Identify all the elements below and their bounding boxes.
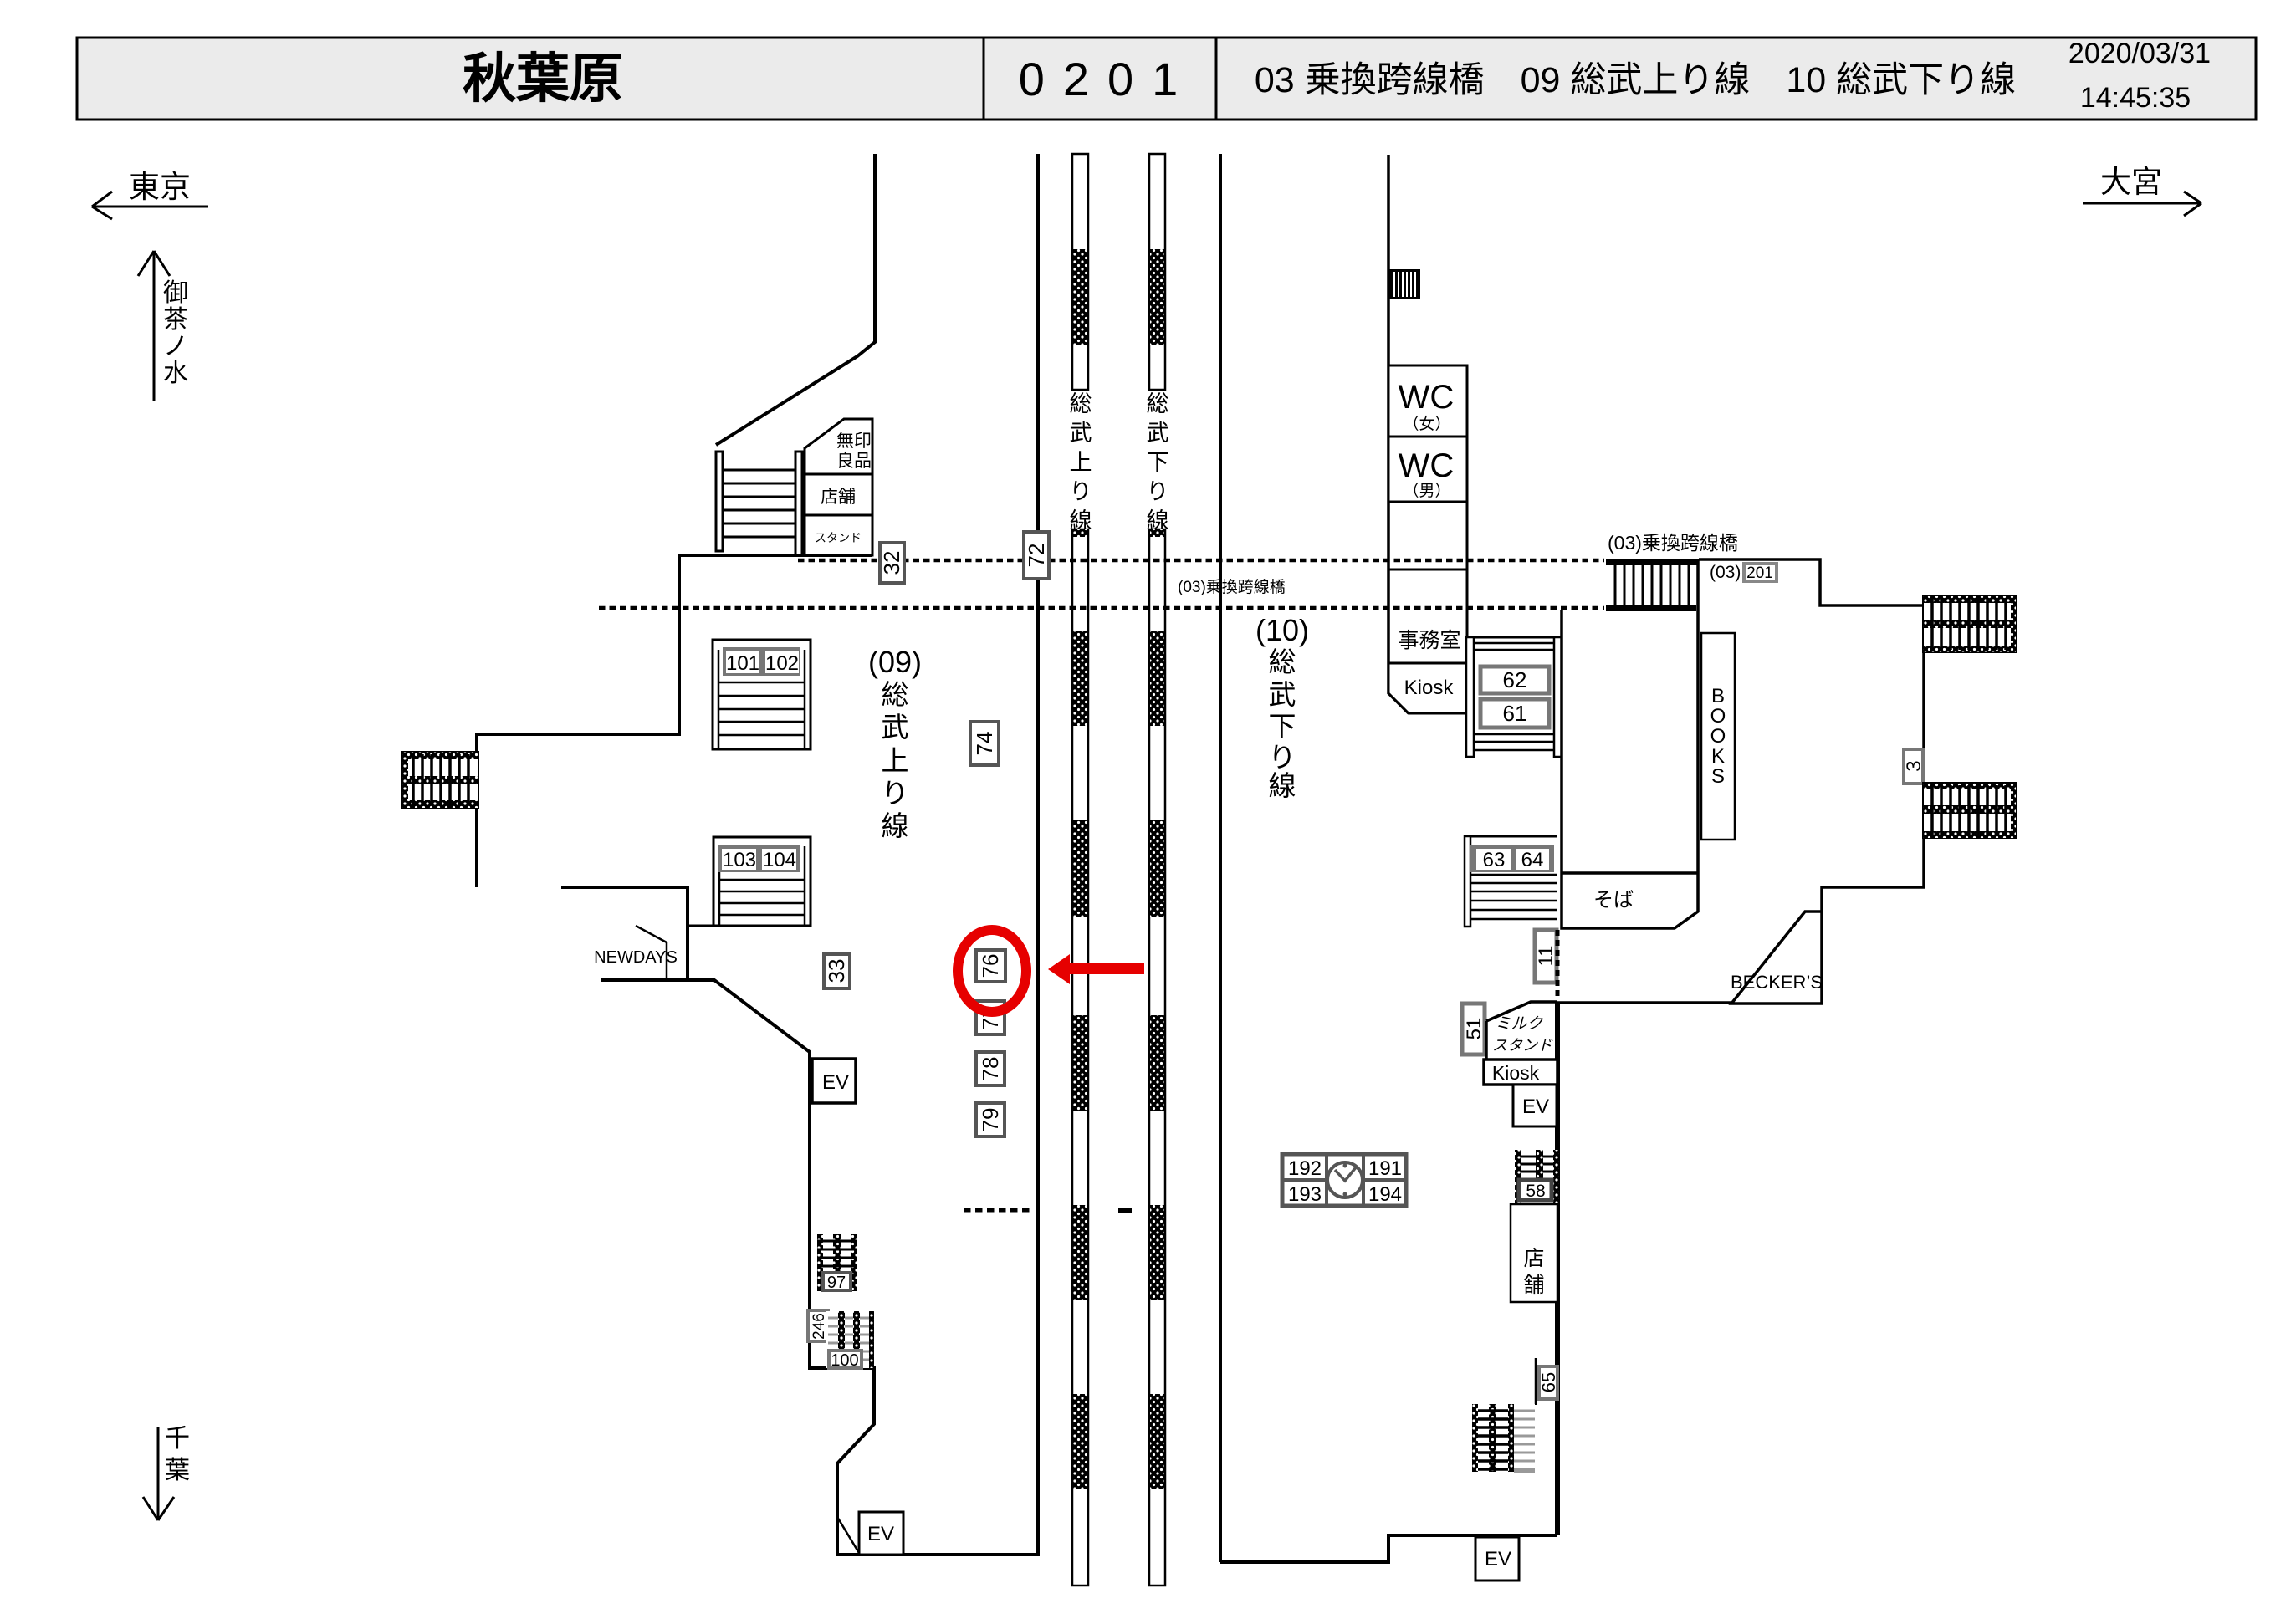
- svg-text:(10): (10): [1255, 613, 1309, 647]
- svg-text:り: り: [1147, 479, 1169, 504]
- svg-text:線: 線: [1269, 770, 1296, 801]
- svg-text:14:45:35: 14:45:35: [2080, 82, 2191, 114]
- svg-text:104: 104: [763, 849, 796, 871]
- svg-text:スタンド: スタンド: [815, 531, 862, 544]
- svg-text:O: O: [1710, 705, 1726, 728]
- svg-text:水: 水: [163, 360, 188, 387]
- svg-text:32: 32: [879, 551, 904, 575]
- svg-text:103: 103: [723, 849, 756, 871]
- svg-text:武: 武: [1070, 421, 1092, 446]
- svg-text:97: 97: [827, 1274, 846, 1292]
- svg-text:良品: 良品: [836, 452, 872, 471]
- svg-text:11: 11: [1535, 946, 1557, 967]
- svg-text:246: 246: [811, 1313, 828, 1340]
- svg-text:総: 総: [1269, 646, 1296, 677]
- svg-text:K: K: [1711, 745, 1725, 768]
- svg-text:EV: EV: [1522, 1095, 1549, 1118]
- svg-text:102: 102: [765, 652, 799, 675]
- svg-text:ノ: ノ: [163, 333, 188, 360]
- svg-text:63: 63: [1483, 849, 1506, 871]
- svg-text:191: 191: [1368, 1157, 1402, 1180]
- svg-text:58: 58: [1526, 1182, 1545, 1201]
- svg-text:（女）: （女）: [1403, 415, 1450, 433]
- svg-text:東京: 東京: [129, 170, 191, 204]
- svg-text:101: 101: [726, 652, 759, 675]
- svg-text:そば: そば: [1593, 889, 1634, 912]
- svg-text:B: B: [1711, 685, 1725, 707]
- svg-text:店: 店: [1523, 1247, 1544, 1270]
- svg-text:194: 194: [1368, 1183, 1402, 1206]
- svg-text:武: 武: [1269, 679, 1296, 710]
- svg-text:100: 100: [831, 1351, 858, 1370]
- svg-text:61: 61: [1503, 701, 1527, 726]
- svg-text:(03)乗換跨線橋: (03)乗換跨線橋: [1608, 532, 1738, 554]
- svg-text:79: 79: [978, 1108, 1003, 1132]
- svg-text:御: 御: [163, 279, 188, 307]
- svg-text:り: り: [882, 778, 909, 809]
- svg-text:(03): (03): [1710, 563, 1741, 582]
- svg-text:総: 総: [1070, 391, 1092, 416]
- svg-text:65: 65: [1538, 1372, 1559, 1392]
- svg-text:62: 62: [1503, 667, 1527, 692]
- svg-text:武: 武: [1147, 421, 1169, 446]
- svg-text:総: 総: [1147, 391, 1169, 416]
- svg-text:78: 78: [978, 1057, 1003, 1081]
- svg-text:WC: WC: [1399, 379, 1455, 416]
- svg-text:0201: 0201: [1019, 53, 1197, 105]
- svg-text:193: 193: [1288, 1183, 1322, 1206]
- svg-text:EV: EV: [1485, 1548, 1511, 1570]
- svg-text:店舗: 店舗: [821, 488, 856, 507]
- svg-text:Kiosk: Kiosk: [1492, 1062, 1540, 1084]
- svg-text:茶: 茶: [163, 306, 188, 334]
- svg-text:O: O: [1710, 725, 1726, 748]
- svg-text:下: 下: [1147, 450, 1169, 475]
- svg-text:3: 3: [1903, 760, 1925, 771]
- svg-text:2020/03/31: 2020/03/31: [2068, 38, 2211, 69]
- svg-text:NEWDAYS: NEWDAYS: [594, 948, 678, 967]
- svg-text:(03)乗換跨線橋: (03)乗換跨線橋: [1178, 578, 1286, 596]
- svg-text:スタンド: スタンド: [1492, 1037, 1553, 1054]
- svg-text:（男）: （男）: [1403, 482, 1450, 500]
- svg-text:武: 武: [882, 712, 909, 743]
- svg-text:03 乗換跨線橋 09 総武上り線 10 総武下り線: 03 乗換跨線橋 09 総武上り線 10 総武下り線: [1255, 60, 2016, 100]
- svg-text:64: 64: [1521, 849, 1544, 871]
- svg-text:192: 192: [1288, 1157, 1322, 1180]
- svg-text:無印: 無印: [836, 432, 872, 451]
- svg-text:EV: EV: [822, 1071, 849, 1094]
- svg-text:Kiosk: Kiosk: [1404, 677, 1455, 699]
- svg-text:千: 千: [165, 1425, 190, 1453]
- svg-text:り: り: [1070, 479, 1092, 504]
- svg-text:上: 上: [882, 745, 909, 776]
- svg-text:り: り: [1269, 742, 1296, 773]
- svg-text:51: 51: [1463, 1018, 1485, 1040]
- svg-text:33: 33: [824, 959, 849, 983]
- svg-text:事務室: 事務室: [1398, 629, 1460, 652]
- svg-text:ミルク: ミルク: [1495, 1015, 1543, 1033]
- svg-text:秋葉原: 秋葉原: [463, 49, 623, 109]
- svg-text:上: 上: [1070, 450, 1092, 475]
- svg-text:BECKER’S: BECKER’S: [1731, 972, 1823, 993]
- svg-text:72: 72: [1024, 544, 1049, 568]
- svg-text:EV: EV: [867, 1523, 894, 1545]
- svg-text:大宮: 大宮: [2100, 165, 2162, 199]
- svg-text:WC: WC: [1399, 447, 1455, 484]
- svg-text:総: 総: [882, 679, 909, 710]
- svg-text:201: 201: [1746, 564, 1773, 582]
- svg-text:76: 76: [978, 954, 1003, 978]
- svg-text:74: 74: [972, 732, 997, 756]
- svg-text:葉: 葉: [165, 1457, 190, 1484]
- svg-text:下: 下: [1269, 711, 1296, 742]
- svg-text:舗: 舗: [1523, 1274, 1544, 1297]
- svg-text:(09): (09): [868, 645, 922, 679]
- svg-text:S: S: [1711, 765, 1725, 788]
- svg-text:線: 線: [882, 810, 909, 841]
